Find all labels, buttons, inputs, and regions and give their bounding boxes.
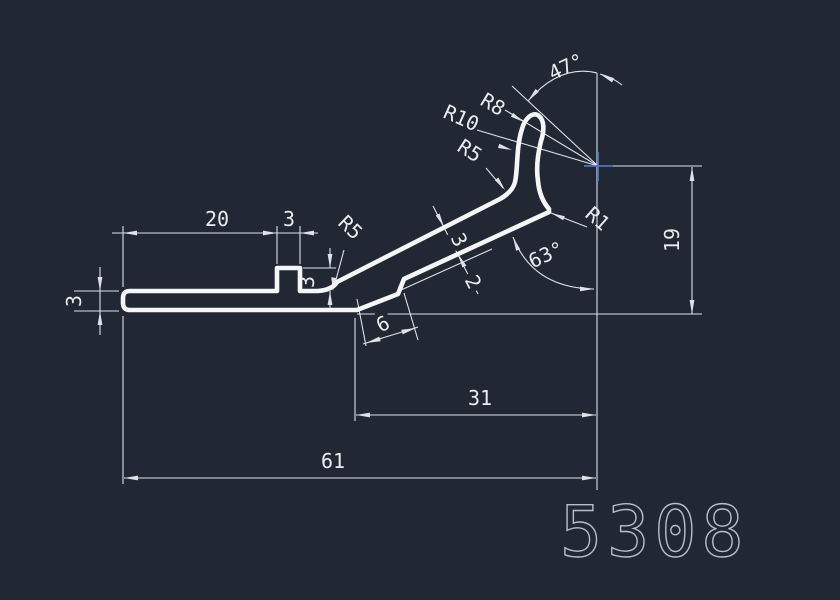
arrowhead bbox=[98, 311, 103, 325]
extension-lines bbox=[123, 73, 702, 490]
radius-dim-r5-root[interactable]: R5 bbox=[331, 210, 367, 291]
dim-angle-47[interactable]: 47° bbox=[512, 48, 622, 166]
arrowhead bbox=[511, 113, 524, 122]
dim-text-2[interactable]: 2 bbox=[460, 271, 487, 293]
dim-span-31[interactable]: 31 bbox=[356, 386, 596, 417]
dim-height-19[interactable]: 19 bbox=[660, 167, 694, 314]
arrowhead bbox=[356, 413, 370, 418]
dim-text-r1[interactable]: R1 bbox=[581, 202, 615, 236]
arrowhead bbox=[328, 291, 333, 305]
cad-viewport[interactable]: 20 3 3 3 19 31 61 bbox=[0, 0, 840, 600]
arrowhead bbox=[600, 74, 614, 83]
dim-text-47[interactable]: 47° bbox=[545, 48, 588, 85]
dim-text-bump-width[interactable]: 3 bbox=[283, 207, 295, 231]
arrowhead bbox=[300, 231, 314, 236]
radius-dim-r5-finger[interactable]: R5 bbox=[453, 134, 505, 190]
arrowhead bbox=[263, 231, 277, 236]
arrowhead bbox=[328, 254, 333, 268]
arrowhead bbox=[528, 89, 539, 101]
arrowhead bbox=[551, 213, 565, 220]
arrowhead bbox=[124, 476, 138, 481]
dim-bar-thickness-3[interactable]: 3 bbox=[62, 267, 119, 335]
arrowhead bbox=[498, 144, 512, 150]
ext-line bbox=[404, 293, 418, 340]
dim-text-20[interactable]: 20 bbox=[205, 207, 229, 231]
dim-text-31[interactable]: 31 bbox=[468, 386, 492, 410]
arrowhead bbox=[401, 328, 416, 334]
dim-text-bar-thickness[interactable]: 3 bbox=[62, 295, 86, 307]
dim-text-r5-finger[interactable]: R5 bbox=[453, 134, 486, 167]
arrowhead bbox=[582, 476, 596, 481]
arrowhead bbox=[98, 277, 103, 291]
dim-text-19[interactable]: 19 bbox=[660, 228, 684, 252]
dim-overall-61[interactable]: 61 bbox=[124, 449, 596, 480]
part-number-text[interactable]: 5308 bbox=[560, 491, 749, 573]
arrowhead bbox=[690, 167, 695, 181]
arrowhead bbox=[580, 287, 594, 292]
arrowhead bbox=[495, 178, 505, 191]
arrowhead bbox=[690, 300, 695, 314]
dim-text-r5-root[interactable]: R5 bbox=[334, 210, 368, 244]
arrowhead bbox=[513, 237, 520, 251]
dim-text-61[interactable]: 61 bbox=[321, 449, 345, 473]
dim-angle-63[interactable]: 63° bbox=[513, 236, 594, 291]
arrowhead bbox=[436, 214, 444, 228]
arrowhead bbox=[123, 231, 137, 236]
arrowhead bbox=[366, 337, 381, 343]
dim-bar-left-20[interactable]: 20 3 bbox=[112, 207, 318, 287]
radius-dim-r1[interactable]: R1 bbox=[551, 202, 615, 236]
dim-text-r10[interactable]: R10 bbox=[440, 100, 483, 137]
dim-lip-length-6[interactable]: 6 6 bbox=[357, 293, 418, 346]
arrowhead bbox=[582, 413, 596, 418]
dim-text-63[interactable]: 63° bbox=[525, 236, 568, 273]
